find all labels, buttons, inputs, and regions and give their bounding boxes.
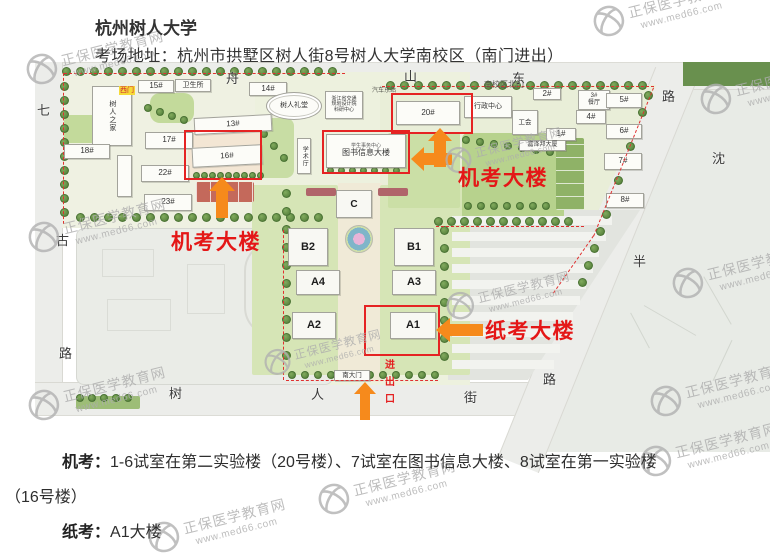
tree: [118, 67, 127, 76]
tree: [529, 202, 537, 210]
parking-bar: [452, 280, 586, 289]
building-label: 15#: [149, 82, 162, 91]
tree: [314, 371, 322, 379]
tree: [146, 213, 155, 222]
tree: [512, 217, 521, 226]
tree: [230, 213, 239, 222]
tree: [477, 202, 485, 210]
tree: [503, 202, 511, 210]
building-学术厅: 学术厅: [297, 138, 311, 174]
tree: [473, 217, 482, 226]
tree: [100, 394, 108, 402]
tree: [624, 81, 633, 90]
street-name-char: 路: [59, 343, 72, 362]
tree: [202, 67, 211, 76]
building-label: 行政中心: [474, 103, 502, 111]
arrow-shaft: [424, 153, 452, 165]
tree: [499, 217, 508, 226]
tree: [174, 213, 183, 222]
tree: [76, 394, 84, 402]
tree: [60, 208, 69, 217]
building-label: 餐厅: [588, 100, 600, 107]
tree: [490, 140, 498, 148]
building-树人之家: 树人之家: [92, 86, 132, 146]
tree: [564, 217, 573, 226]
building-label: 22#: [158, 169, 171, 178]
tree: [470, 81, 479, 90]
tree: [442, 81, 451, 90]
west-gate-badge: 西门: [119, 86, 135, 95]
tree: [270, 142, 278, 150]
watermark-text: 正保医学教育网www.med66.com: [626, 0, 735, 33]
tree: [460, 217, 469, 226]
tree: [288, 371, 296, 379]
tree: [456, 81, 465, 90]
tree: [282, 189, 291, 198]
building-label: B1: [407, 241, 421, 253]
lot-building: [187, 264, 225, 314]
tree: [188, 213, 197, 222]
building-B1: B1: [394, 228, 434, 266]
building-18#: 18#: [64, 144, 110, 159]
tree: [551, 217, 560, 226]
tree: [504, 142, 512, 150]
tree: [428, 81, 437, 90]
tree: [476, 138, 484, 146]
tree: [538, 217, 547, 226]
building-工会: 工会: [512, 110, 538, 135]
tree: [568, 81, 577, 90]
building-label: 树人礼堂: [280, 102, 308, 110]
tree: [584, 261, 593, 270]
tree: [300, 213, 309, 222]
street-name-char: 古: [56, 230, 69, 249]
campus-boundary-dash: [286, 380, 438, 381]
parking-bar: [452, 248, 599, 257]
building-label: 18#: [80, 147, 93, 156]
building-label: A4: [311, 276, 325, 288]
building-嘉泽邦大厦: 嘉泽邦大厦: [519, 140, 566, 151]
arrow-head: [354, 382, 376, 394]
tree: [60, 194, 69, 203]
arrow-shaft: [216, 191, 228, 218]
tree: [516, 202, 524, 210]
building-C: C: [336, 190, 372, 218]
building-label: A3: [407, 276, 421, 288]
tree: [638, 81, 647, 90]
tree: [490, 202, 498, 210]
building-label: 学术厅: [301, 146, 308, 167]
exam-building-label: 纸考大楼: [485, 315, 575, 345]
tree: [90, 213, 99, 222]
tree: [144, 104, 152, 112]
street-name-char: 路: [662, 86, 675, 105]
building-B2: B2: [288, 228, 328, 266]
tree: [418, 371, 426, 379]
building-23#: 23#: [144, 194, 192, 211]
tree: [314, 213, 323, 222]
building-label: 工会: [519, 119, 532, 126]
parking-bar: [452, 344, 560, 353]
tree: [216, 67, 225, 76]
building-label: A2: [307, 319, 321, 331]
parking-bar: [452, 296, 580, 305]
exam-building-label: 机考大楼: [171, 226, 261, 256]
tree: [582, 81, 591, 90]
note-machine-label: 机考：: [62, 454, 110, 471]
parking-bar: [452, 232, 606, 241]
tree: [168, 112, 176, 120]
tree: [610, 81, 619, 90]
tree: [88, 394, 96, 402]
note-machine-exam: 机考：1-6试室在第二实验楼（20号楼）、7试室在图书信息大楼、8试室在第一实验…: [5, 445, 657, 515]
map-label: 南校区北门: [484, 79, 524, 90]
tree: [188, 67, 197, 76]
building-A2: A2: [292, 312, 336, 339]
tree: [160, 67, 169, 76]
lawn-area: [306, 188, 336, 196]
lawn-area: [378, 188, 408, 196]
building-label: 树人之家: [108, 100, 116, 132]
lot-building: [102, 249, 154, 277]
arrow-head: [411, 147, 424, 171]
tree: [60, 124, 69, 133]
tree: [328, 67, 337, 76]
building-2#: 2#: [533, 88, 561, 100]
watermark-site-name: 正保医学教育网: [626, 0, 733, 23]
building-label: 3#: [591, 93, 598, 100]
tree: [258, 213, 267, 222]
tree: [301, 371, 309, 379]
building-label: 1#: [557, 130, 566, 139]
tree: [90, 67, 99, 76]
arrow-head: [436, 318, 450, 342]
campus-boundary-dash: [63, 73, 64, 224]
street-name-char: 树: [169, 383, 182, 402]
street-name-char: 半: [633, 251, 646, 270]
tree: [60, 110, 69, 119]
building-label: B2: [301, 241, 315, 253]
tree: [300, 67, 309, 76]
building-label: 6#: [620, 127, 629, 136]
tree: [578, 278, 587, 287]
tree: [118, 213, 127, 222]
tree: [174, 67, 183, 76]
tree: [104, 213, 113, 222]
exam-notice-page: 杭州树人大学 考场地址：杭州市拱墅区树人街8号树人大学南校区（南门进出） 树人之…: [0, 0, 770, 555]
tree: [132, 213, 141, 222]
note-paper-label: 纸考：: [62, 524, 110, 541]
building-5#: 5#: [606, 93, 642, 108]
building-label: 嘉泽邦大厦: [527, 142, 557, 149]
street-name-char: 沈: [712, 148, 725, 167]
green-block-northeast: [683, 62, 770, 86]
building-A4: A4: [296, 270, 340, 295]
tree: [124, 394, 132, 402]
tree: [440, 280, 449, 289]
tree: [405, 371, 413, 379]
campus-boundary-dash: [64, 73, 345, 74]
building-label: C: [350, 199, 357, 210]
tree: [280, 154, 288, 162]
exam-building-label: 机考大楼: [458, 162, 548, 192]
tree: [60, 96, 69, 105]
tree: [76, 213, 85, 222]
building-树人礼堂: 树人礼堂: [266, 92, 322, 120]
building-label: 卫生所: [183, 82, 204, 90]
building-label: 17#: [162, 136, 175, 145]
tree: [60, 180, 69, 189]
entrance-char: 进: [385, 356, 395, 371]
tree: [202, 213, 211, 222]
central-garden-circle: [345, 225, 373, 253]
tree: [244, 213, 253, 222]
exam-highlight-box: [364, 305, 440, 356]
campus-boundary-dash: [436, 226, 584, 227]
arrow-head: [209, 177, 235, 191]
tree: [486, 217, 495, 226]
tree: [272, 213, 281, 222]
building-8#: 8#: [606, 193, 644, 208]
tree: [440, 262, 449, 271]
parking-bar: [452, 360, 554, 369]
note-paper-text: A1大楼: [110, 524, 162, 541]
exam-highlight-box: [184, 130, 262, 180]
tree: [462, 136, 470, 144]
tree: [156, 108, 164, 116]
building-label: 5#: [620, 96, 629, 105]
building-22#: 22#: [141, 165, 189, 182]
note-paper-exam: 纸考：A1大楼: [5, 515, 657, 550]
tree: [112, 394, 120, 402]
tree: [180, 116, 188, 124]
building-label: 4#: [587, 113, 596, 122]
campus-boundary-dash: [283, 230, 284, 380]
zhengbao-logo-icon: [588, 0, 630, 46]
street-name-char: 人: [311, 384, 324, 403]
tree: [440, 244, 449, 253]
map-label: 汽车东站: [372, 85, 396, 94]
tree: [590, 244, 599, 253]
tree: [596, 81, 605, 90]
building-label: 13#: [226, 120, 240, 129]
exam-address: 考场地址：杭州市拱墅区树人街8号树人大学南校区（南门进出）: [95, 42, 564, 66]
building-15#: 15#: [138, 80, 174, 93]
street-name-char: 街: [464, 387, 477, 406]
tree: [60, 82, 69, 91]
tree: [76, 67, 85, 76]
tree: [542, 202, 550, 210]
tree: [160, 213, 169, 222]
watermark-site-url: www.med66.com: [640, 0, 736, 31]
building-label: 2#: [543, 90, 552, 99]
exam-notes: 机考：1-6试室在第二实验楼（20号楼）、7试室在图书信息大楼、8试室在第一实验…: [5, 445, 657, 550]
arrow-shaft: [360, 394, 370, 420]
tree: [60, 166, 69, 175]
tree: [314, 67, 323, 76]
arrow-head: [428, 128, 452, 141]
street-name-char: 路: [543, 369, 556, 388]
building-卫生所: 卫生所: [175, 79, 211, 92]
lot-building: [107, 299, 171, 331]
tree: [431, 371, 439, 379]
building-label: 南大门: [342, 372, 362, 379]
tree: [132, 67, 141, 76]
tree: [440, 298, 449, 307]
tree: [282, 207, 291, 216]
building-label: 14#: [261, 85, 274, 94]
tree: [434, 217, 443, 226]
building-label: 23#: [161, 198, 174, 207]
page-title: 杭州树人大学: [95, 14, 197, 39]
tree: [447, 217, 456, 226]
exam-highlight-box: [322, 130, 410, 174]
entrance-char: 出: [385, 373, 395, 388]
tree: [286, 67, 295, 76]
tree: [258, 67, 267, 76]
tree: [104, 67, 113, 76]
street-name-char: 七: [37, 100, 50, 119]
building-A3: A3: [392, 270, 436, 295]
entrance-char: 口: [385, 390, 395, 405]
tree: [525, 217, 534, 226]
building-label: 8#: [621, 196, 630, 205]
tree: [272, 67, 281, 76]
watermark: 正保医学教育网www.med66.com: [588, 0, 736, 46]
tree: [244, 67, 253, 76]
building-label: 科研中心: [334, 108, 354, 114]
building-浙江省交通: 浙江省交通规划设计院科研中心: [325, 91, 363, 119]
building-4#: 4#: [576, 110, 606, 124]
building-block: [117, 155, 132, 197]
street-name-char: 舟: [226, 68, 239, 87]
tree: [440, 352, 449, 361]
tree: [464, 202, 472, 210]
arrow-shaft: [450, 324, 483, 336]
street-name-char: 山: [404, 66, 417, 85]
tree: [146, 67, 155, 76]
